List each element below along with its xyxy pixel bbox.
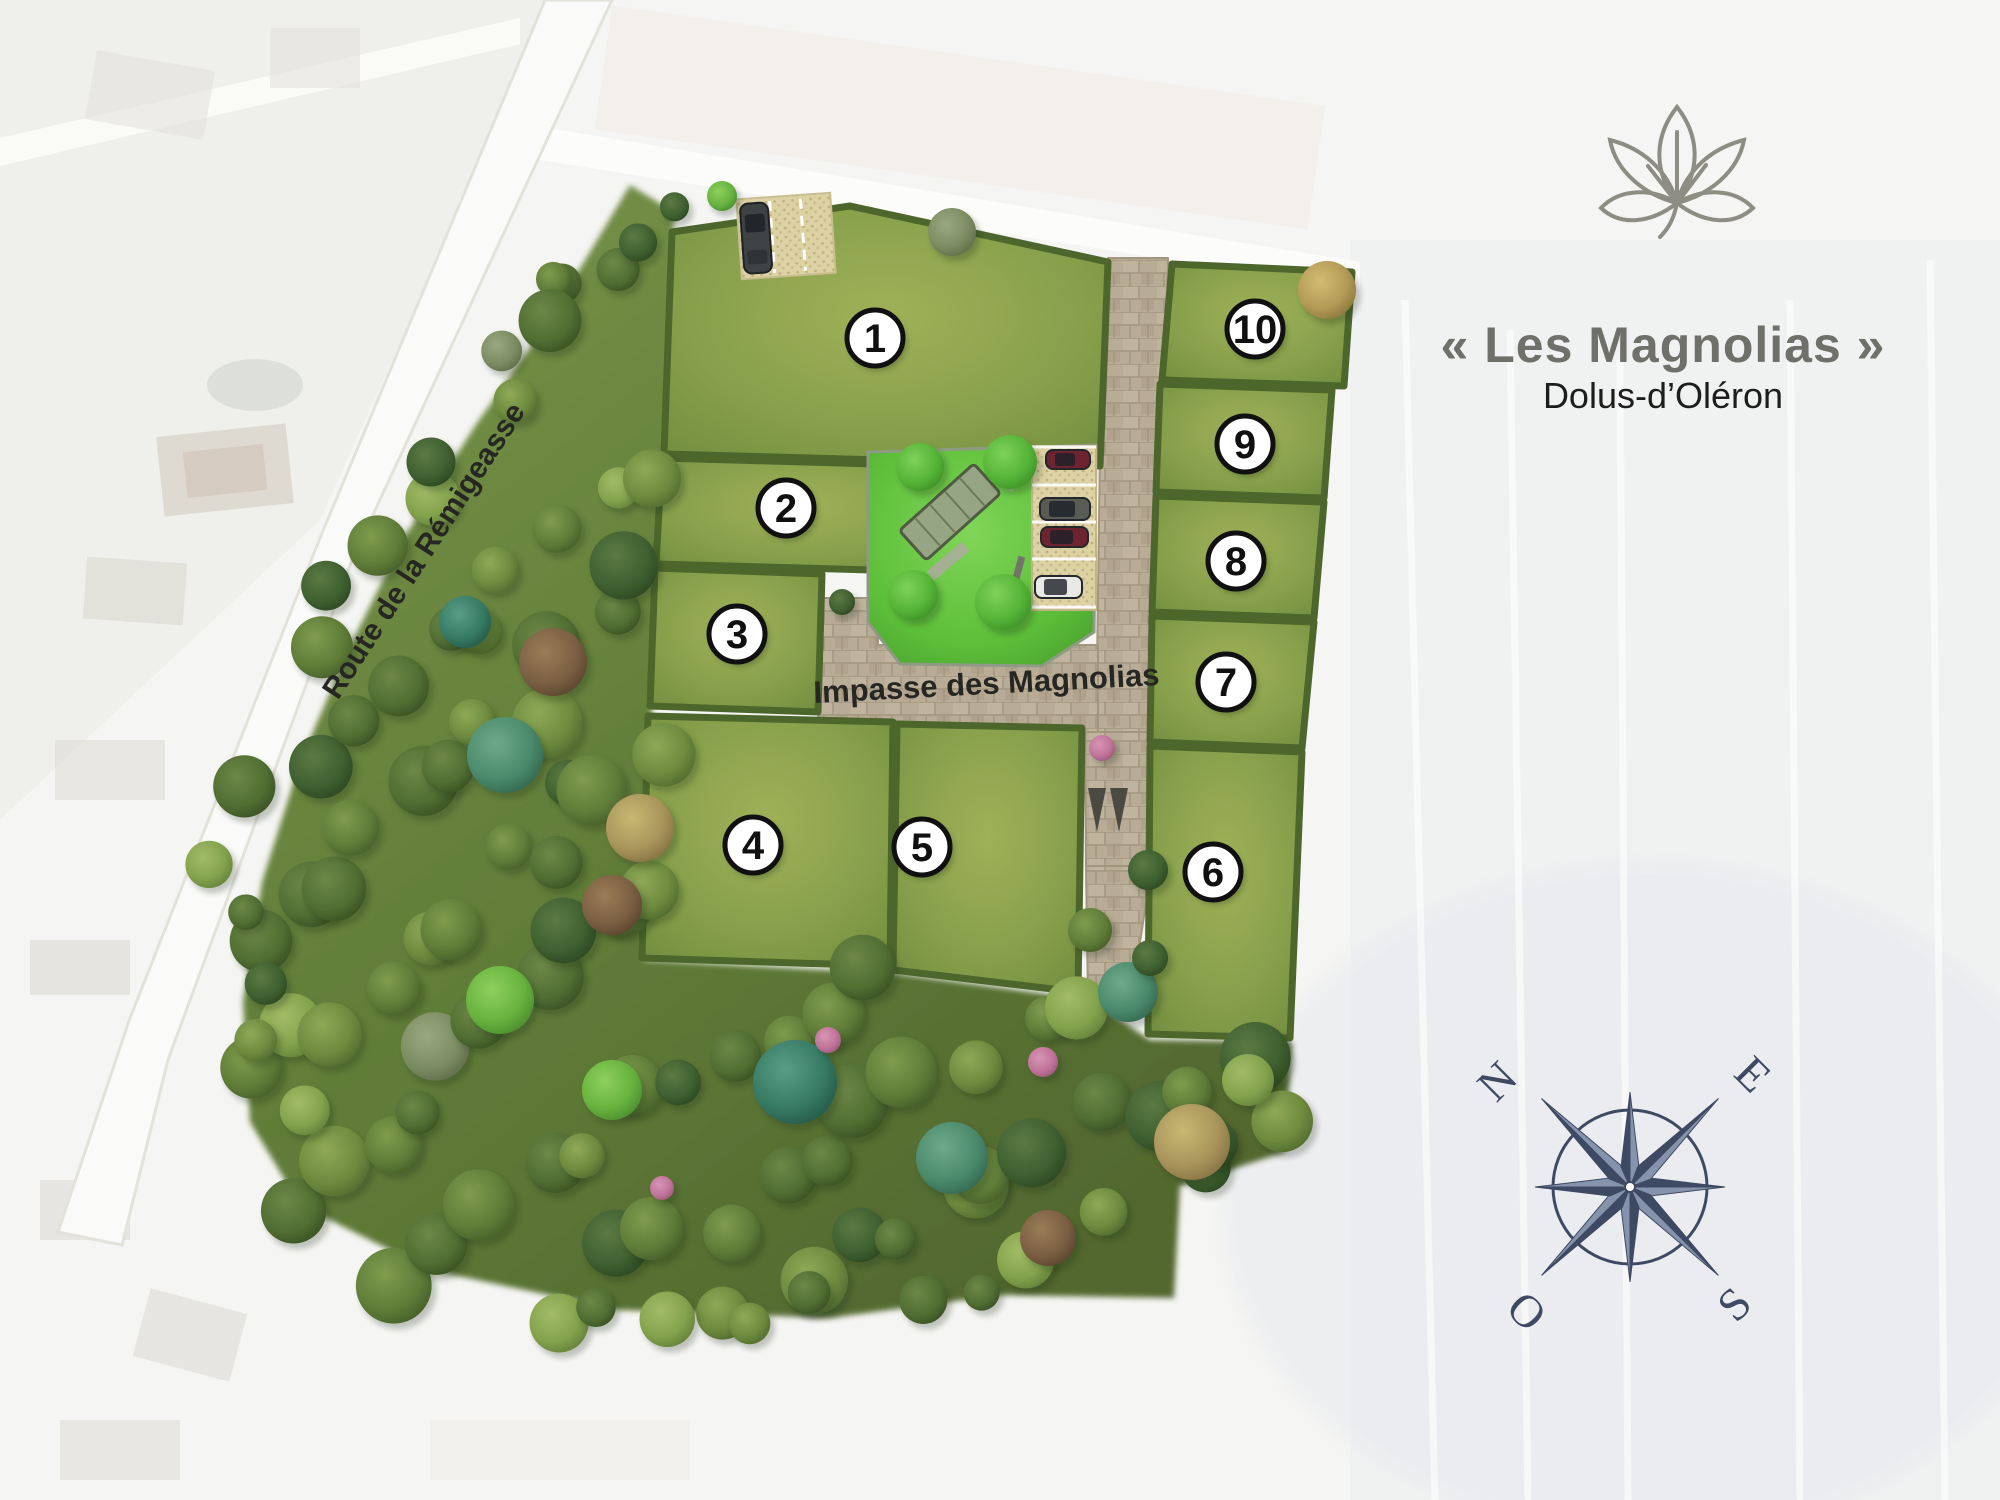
parked-car-lot1 — [740, 202, 773, 274]
site-plan-map: Impasse des Magnolias Route de la Rémige… — [0, 0, 2000, 1500]
parked-car-3 — [1041, 527, 1088, 547]
central-square — [868, 435, 1096, 666]
lot-number: 4 — [742, 824, 765, 868]
lot-marker-5: 5 — [894, 819, 954, 880]
page-title: « Les Magnolias » — [1441, 317, 1886, 373]
lot-marker-9: 9 — [1217, 416, 1277, 477]
site-plan-page: Impasse des Magnolias Route de la Rémige… — [0, 0, 2000, 1500]
compass-hub — [1625, 1182, 1635, 1192]
lot-number: 8 — [1225, 540, 1247, 584]
lot-number: 10 — [1233, 308, 1278, 352]
lot1-parking — [736, 193, 835, 279]
lot-number: 7 — [1215, 661, 1237, 705]
lot-number: 1 — [864, 317, 886, 361]
lot-number: 6 — [1202, 851, 1224, 895]
parked-car-4 — [1035, 576, 1082, 598]
lot-number: 9 — [1234, 423, 1256, 467]
lot-number: 3 — [726, 613, 748, 657]
lot-marker-8: 8 — [1208, 533, 1268, 594]
parked-car-2 — [1040, 498, 1090, 520]
lot-marker-3: 3 — [709, 606, 769, 667]
lot-marker-2: 2 — [758, 480, 818, 541]
parked-car-1 — [1046, 450, 1090, 469]
page-subtitle: Dolus-d’Oléron — [1543, 375, 1783, 416]
lot-marker-4: 4 — [725, 817, 785, 878]
lot-marker-7: 7 — [1198, 654, 1258, 715]
lot-number: 2 — [775, 487, 797, 531]
lot-marker-1: 1 — [847, 310, 907, 371]
lot-marker-10: 10 — [1227, 301, 1287, 362]
lot-marker-6: 6 — [1185, 844, 1245, 905]
lot-number: 5 — [911, 826, 933, 870]
